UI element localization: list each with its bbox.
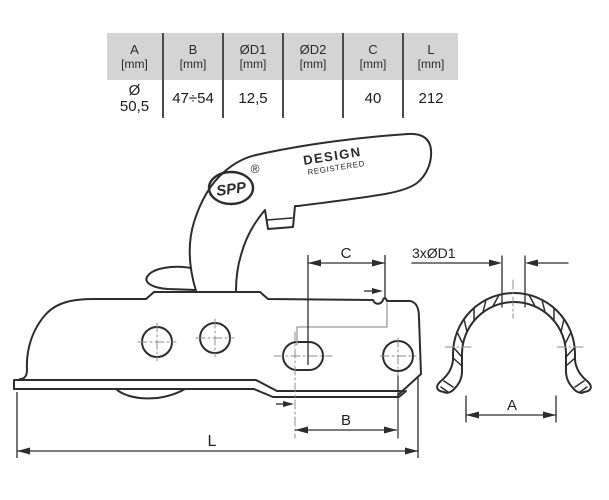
registered-trademark-symbol: ® (251, 162, 260, 176)
friction-pad-flap (116, 389, 185, 398)
section-inner-boundary (455, 302, 573, 388)
label-b: B (341, 412, 351, 429)
section-outer-boundary (437, 293, 591, 392)
cross-section-view: 3xØD1 A (412, 245, 591, 422)
label-l: L (208, 433, 217, 450)
technical-drawing-page: A [mm] B [mm] ØD1 [mm] ØD2 [mm] C [mm] L… (0, 0, 609, 500)
label-c: C (341, 245, 352, 262)
bottom-plate-left-cap (14, 380, 16, 389)
dimension-b: B (295, 412, 397, 434)
side-view: SPP ® DESIGN REGISTERED (14, 134, 431, 438)
reference-arrow-plate (276, 401, 294, 407)
hidden-edge (297, 303, 387, 345)
section-hatching (441, 295, 587, 392)
hole-centerlines (138, 319, 416, 438)
reference-arrow-top (364, 288, 383, 294)
handle-pivot-boss (146, 267, 196, 290)
label-d1: 3xØD1 (412, 245, 456, 261)
coupling-drawing: SPP ® DESIGN REGISTERED C (0, 0, 609, 500)
label-a: A (507, 397, 517, 414)
dimension-a: A (466, 396, 556, 422)
